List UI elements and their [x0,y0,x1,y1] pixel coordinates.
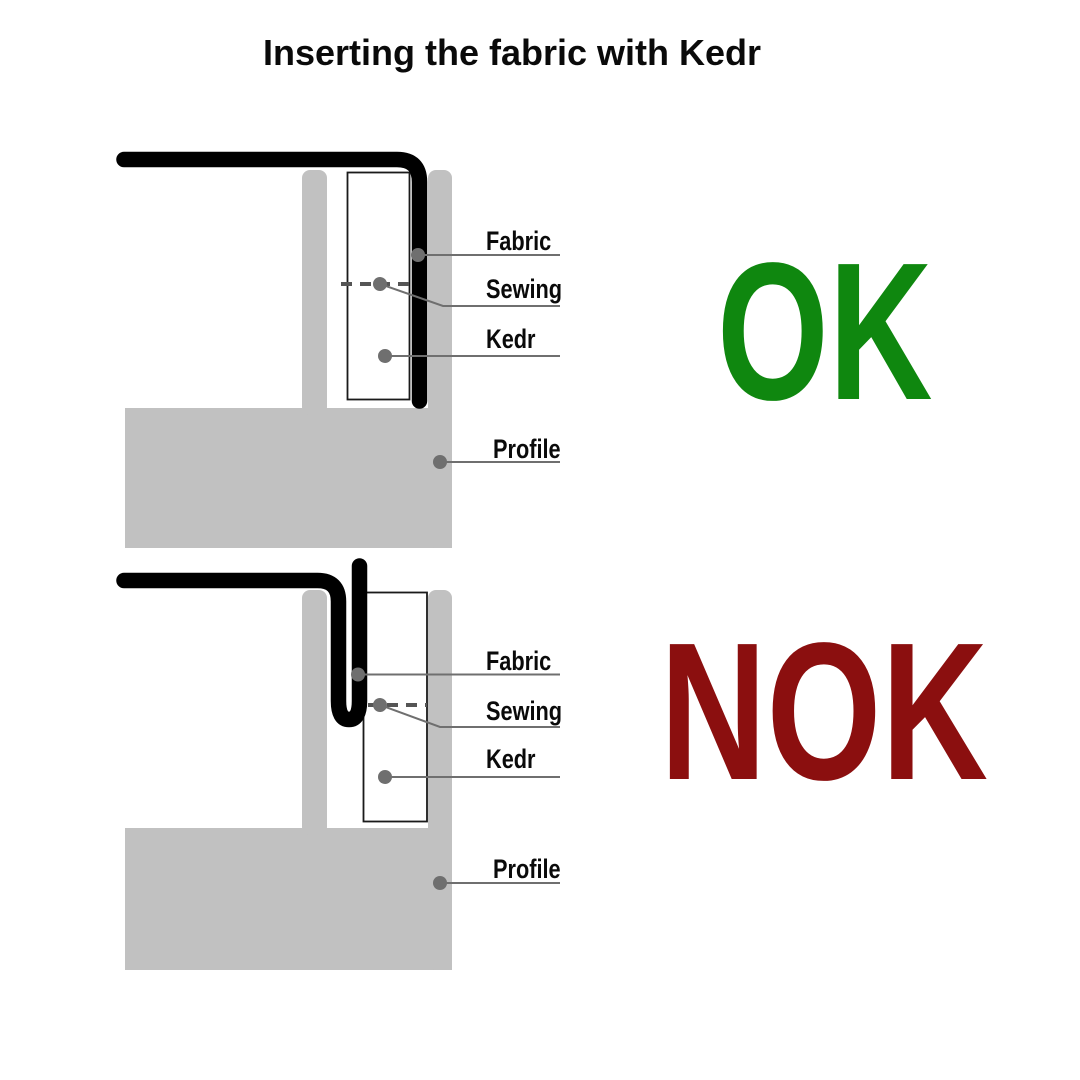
diagram-graphics [0,0,1080,1080]
label-kedr-ok: Kedr [486,326,536,353]
label-kedr-nok: Kedr [486,746,536,773]
sewing-callout-dot [373,698,387,712]
profile-callout-dot [433,876,447,890]
sewing-callout-dot [373,277,387,291]
label-fabric-nok: Fabric [486,648,551,675]
profile-right-rib [428,170,452,548]
profile-callout-dot [433,455,447,469]
kedr-callout-dot [378,770,392,784]
label-fabric-ok: Fabric [486,228,551,255]
nok-verdict-text: NOK [660,614,988,810]
label-sewing-nok: Sewing [486,698,562,725]
fabric-callout-dot [351,668,365,682]
profile-base [125,408,452,548]
ok-verdict-text: OK [717,234,933,430]
fabric-callout-dot [411,248,425,262]
profile-right-rib [428,590,452,970]
label-profile-nok: Profile [493,856,561,883]
label-profile-ok: Profile [493,436,561,463]
profile-left-rib [302,590,327,835]
profile-base [125,828,452,970]
label-sewing-ok: Sewing [486,276,562,303]
kedr-callout-dot [378,349,392,363]
infographic-canvas: Inserting the fabric with Kedr [0,0,1080,1080]
profile-left-rib [302,170,327,415]
